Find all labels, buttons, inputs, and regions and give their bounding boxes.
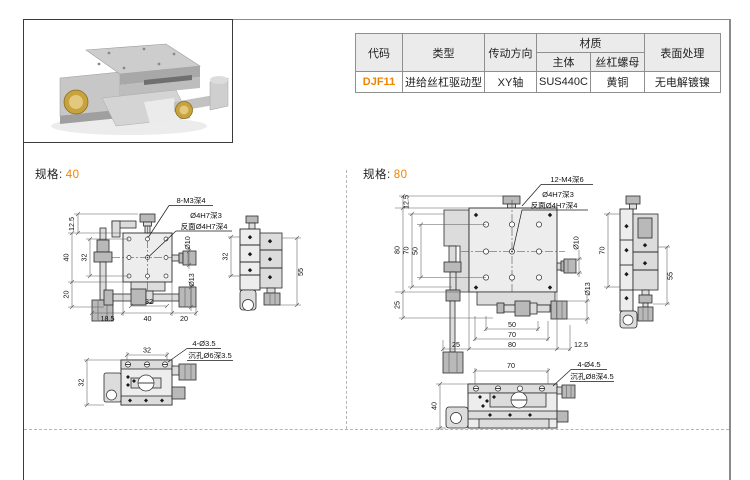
dim-label: 25 xyxy=(393,301,402,309)
spec40-label-text: 规格: xyxy=(35,169,63,181)
dim-label: 70 xyxy=(402,247,411,255)
section-divider-vertical xyxy=(346,170,347,429)
cell-direction: XY轴 xyxy=(485,72,537,93)
spec80-drawing: 12-M4深6 Ø4H7深3 反面Ø4H7深4 12.5 80 25 70 50 xyxy=(392,168,724,435)
dim-label: 70 xyxy=(508,330,516,339)
col-header-material-body: 主体 xyxy=(537,53,591,72)
callout-hole-label: Ø4H7深3 xyxy=(542,190,574,199)
spec40-label: 规格:40 xyxy=(35,166,80,182)
dim-label: 40 xyxy=(144,314,152,323)
spec40-side-view: 32 55 xyxy=(221,216,306,311)
dim-label: 25 xyxy=(452,340,460,349)
dim-label: 32 xyxy=(221,253,230,261)
callout-holes-label: 4-Ø4.5 xyxy=(577,360,600,369)
cell-surface: 无电解镀镍 xyxy=(644,72,720,93)
spec40-drawing: 8-M3深4 Ø4H7深3 反面Ø4H7深4 12.5 40 32 20 18.… xyxy=(40,183,340,433)
dim-label: 55 xyxy=(666,272,675,280)
spec40-bottom-view: 32 4-Ø3.5 沉孔Ø6深3.5 32 xyxy=(77,339,234,407)
dim-label: 80 xyxy=(393,246,402,254)
dim-label: 80 xyxy=(508,340,516,349)
dim-label: 12.5 xyxy=(574,340,588,349)
page-border-right xyxy=(729,19,731,480)
col-header-type: 类型 xyxy=(403,34,485,72)
col-header-material-nut: 丝杠螺母 xyxy=(590,53,644,72)
callout-back-label: 反面Ø4H7深4 xyxy=(181,221,228,231)
col-header-material: 材质 xyxy=(537,34,645,53)
product-photo-box xyxy=(23,19,233,143)
cell-body: SUS440C xyxy=(537,72,591,93)
dim-label: 50 xyxy=(411,247,420,255)
dim-label: Ø13 xyxy=(583,282,592,296)
col-header-direction: 传动方向 xyxy=(485,34,537,72)
callout-cbore-label: 沉孔Ø6深3.5 xyxy=(188,351,231,360)
dim-label: Ø13 xyxy=(187,273,196,287)
dim-label: 12.5 xyxy=(402,195,411,209)
dim-label: 32 xyxy=(80,254,89,262)
cell-type: 进给丝杠驱动型 xyxy=(403,72,485,93)
callout-holes-label: 8-M3深4 xyxy=(176,196,205,205)
dim-label: 32 xyxy=(145,297,153,306)
page-border-top xyxy=(233,19,731,20)
col-header-surface: 表面处理 xyxy=(644,34,720,72)
spec80-side-view: 70 55 xyxy=(598,196,675,328)
dim-label: 32 xyxy=(77,379,86,387)
dim-label: 70 xyxy=(598,247,607,255)
dim-label: Ø10 xyxy=(572,236,581,250)
callout-holes-label: 4-Ø3.5 xyxy=(192,339,215,348)
dim-label: 12.5 xyxy=(67,217,76,231)
catalog-page: 代码 类型 传动方向 材质 表面处理 主体 丝杠螺母 DJF11 进给丝杠驱动型… xyxy=(0,0,750,480)
dim-label: 55 xyxy=(296,268,305,276)
dim-label: 50 xyxy=(508,320,516,329)
dim-label: 70 xyxy=(507,361,515,370)
dim-label: 32 xyxy=(143,346,151,355)
spec-table: 代码 类型 传动方向 材质 表面处理 主体 丝杠螺母 DJF11 进给丝杠驱动型… xyxy=(355,33,721,93)
callout-cbore-label: 沉孔Ø8深4.5 xyxy=(570,372,613,381)
dim-label: 20 xyxy=(180,314,188,323)
spec80-label-text: 规格: xyxy=(363,169,391,181)
cell-nut: 黄铜 xyxy=(590,72,644,93)
spec40-size: 40 xyxy=(66,169,80,181)
cell-code: DJF11 xyxy=(356,72,403,93)
dim-label: 20 xyxy=(62,291,71,299)
col-header-code: 代码 xyxy=(356,34,403,72)
dim-label: 18.5 xyxy=(101,314,115,323)
callout-holes-label: 12-M4深6 xyxy=(550,175,583,184)
callout-back-label: 反面Ø4H7深4 xyxy=(531,200,578,210)
table-row: DJF11 进给丝杠驱动型 XY轴 SUS440C 黄铜 无电解镀镍 xyxy=(356,72,721,93)
dim-label: 40 xyxy=(62,254,71,262)
product-photo xyxy=(24,20,232,142)
dim-label: 40 xyxy=(430,402,439,410)
dim-label: Ø10 xyxy=(183,236,192,250)
callout-hole-label: Ø4H7深3 xyxy=(190,211,222,220)
